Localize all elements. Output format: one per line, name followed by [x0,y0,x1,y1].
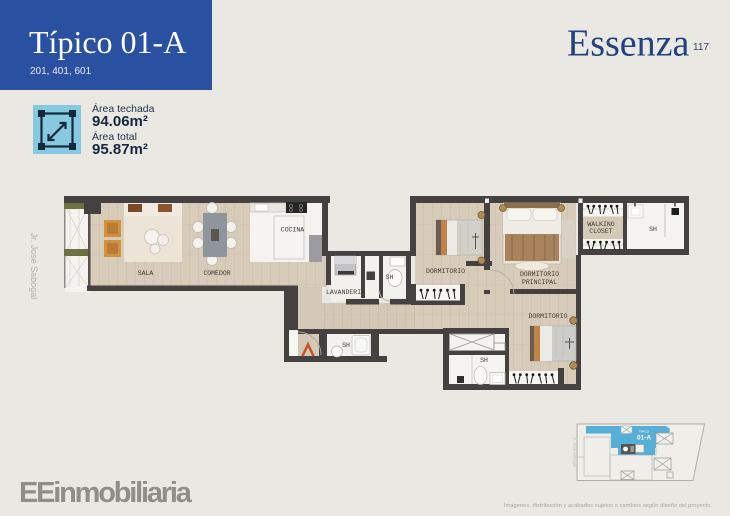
svg-text:Jr. José Sabogal: Jr. José Sabogal [573,437,578,467]
svg-text:SH: SH [342,342,350,349]
svg-text:COMEDOR: COMEDOR [203,270,230,277]
svg-text:COCINA: COCINA [281,227,305,234]
svg-text:DORMITORIO: DORMITORIO [520,271,559,278]
svg-text:WALKING: WALKING [587,221,614,228]
svg-text:Jr. José Sabogal: Jr. José Sabogal [29,233,39,300]
svg-text:CLOSET: CLOSET [589,228,613,235]
svg-text:DORMITORIO: DORMITORIO [426,268,465,275]
svg-text:LAVANDERIA: LAVANDERIA [326,289,365,296]
svg-text:PRINCIPAL: PRINCIPAL [522,279,557,286]
svg-text:Essenza: Essenza [567,23,690,65]
svg-text:95.87m²: 95.87m² [92,141,148,158]
svg-text:SALA: SALA [138,270,154,277]
svg-text:SH: SH [480,357,488,364]
svg-text:DORMITORIO: DORMITORIO [528,313,567,320]
svg-text:01-A: 01-A [637,435,651,442]
svg-text:94.06m²: 94.06m² [92,113,148,130]
svg-text:TÍPICO: TÍPICO [639,430,650,434]
svg-text:Imágenes, distribución y acaba: Imágenes, distribución y acabados sujeto… [504,503,713,509]
svg-text:SH: SH [386,274,394,281]
svg-text:117: 117 [693,42,709,53]
svg-text:Típico 01-A: Típico 01-A [29,24,186,60]
svg-text:201, 401, 601: 201, 401, 601 [30,66,92,77]
svg-text:SH: SH [649,226,657,233]
svg-text:EEinmobiliaria: EEinmobiliaria [19,477,193,509]
